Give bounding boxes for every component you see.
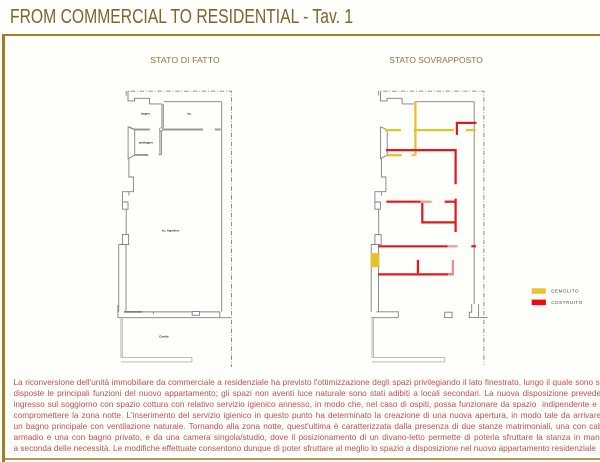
svg-text:loc. frigorifero: loc. frigorifero: [162, 229, 180, 233]
svg-text:Cortile: Cortile: [159, 334, 169, 338]
svg-text:antibagno: antibagno: [139, 140, 153, 144]
svg-text:bagno: bagno: [141, 111, 150, 115]
svg-text:DEMOLITO: DEMOLITO: [551, 289, 579, 294]
svg-text:COSTRUITO: COSTRUITO: [551, 300, 582, 305]
svg-text:rip.: rip.: [187, 111, 191, 115]
